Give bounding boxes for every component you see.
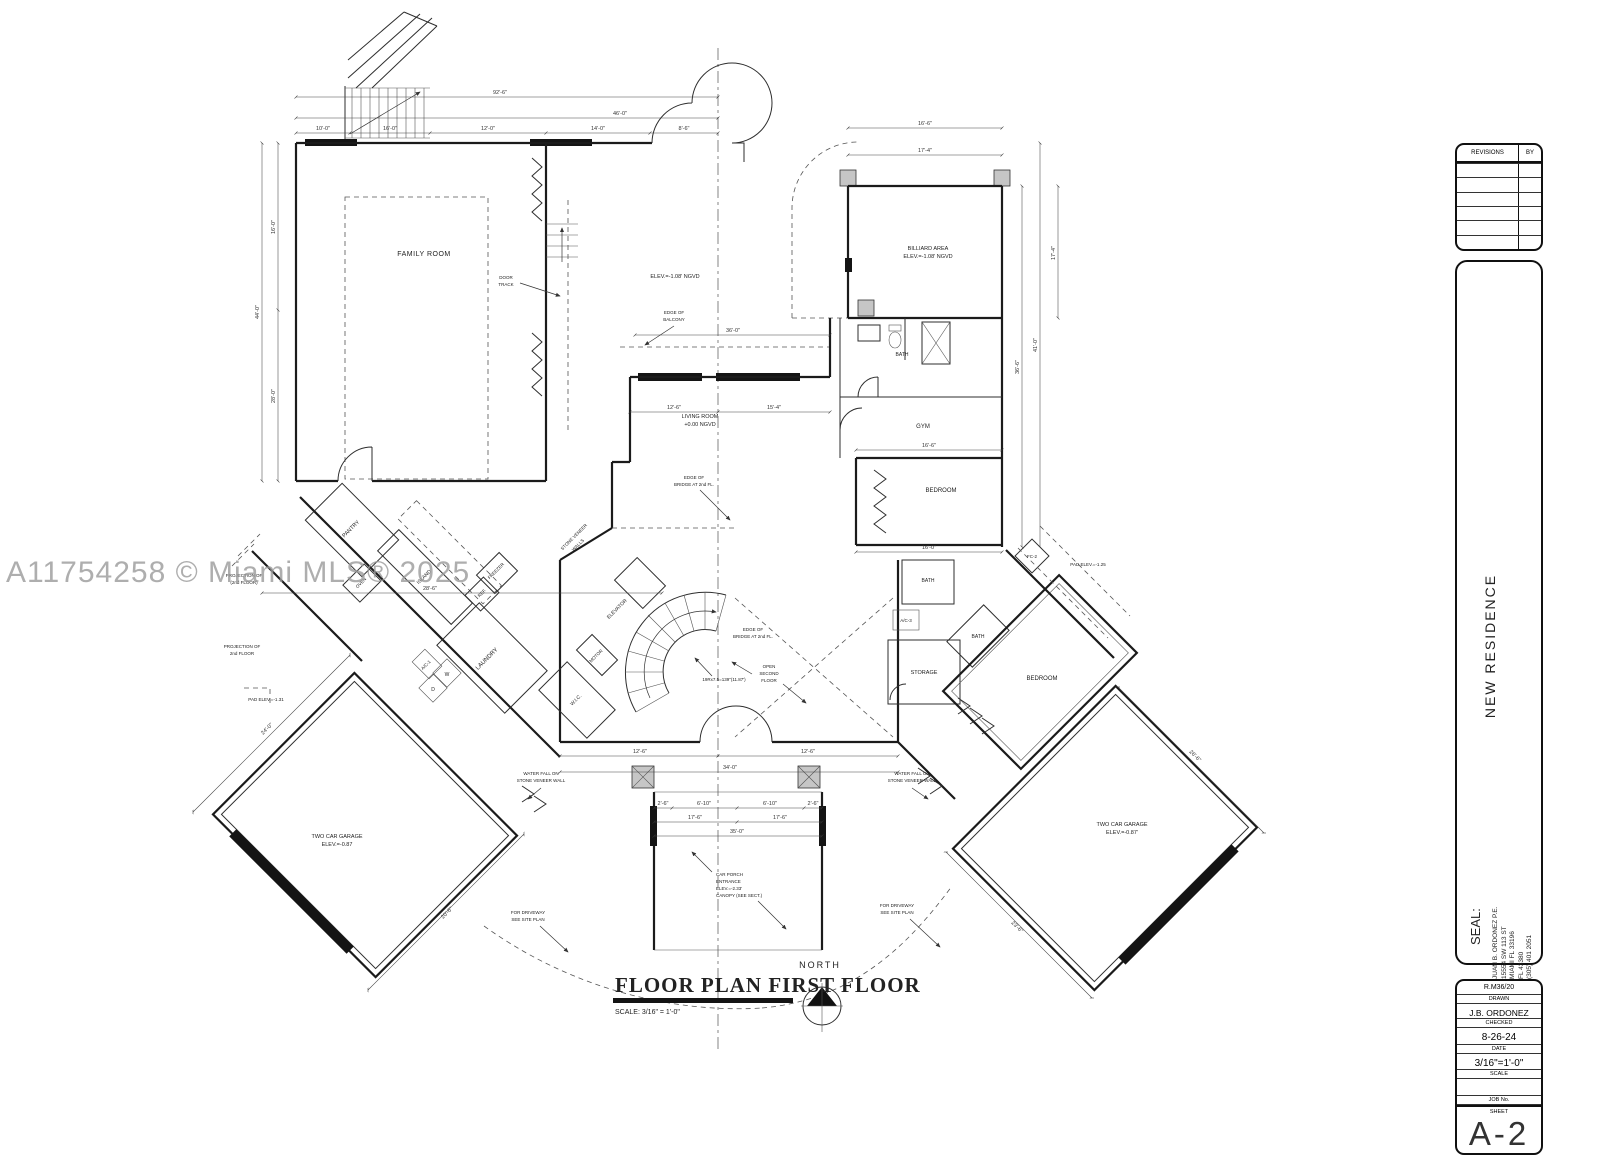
seal-label: SEAL: [1468, 875, 1486, 945]
engineer-line: (305) 401 2051 [1526, 849, 1535, 979]
pad131-note: PAD ELEV.=-1.31 [248, 697, 284, 702]
revision-row [1457, 206, 1541, 220]
top-canopy-stairs [345, 12, 437, 140]
dim-label: 46'-0" [613, 111, 627, 117]
revisions-table: REVISIONS BY [1455, 143, 1543, 251]
dim-label: 23'-6" [1010, 920, 1024, 934]
revision-row [1457, 220, 1541, 234]
right-garage [953, 686, 1260, 993]
dim-label: 24'-0" [260, 722, 274, 736]
date-value: 8-26-24 [1457, 1028, 1541, 1043]
storage-label: STORAGE [911, 670, 938, 676]
ac1-label: A/C-1 [420, 659, 432, 671]
door-track-note: DOOR [499, 275, 513, 280]
gym-bedroom-walls [840, 397, 1002, 545]
curved-stair [625, 592, 726, 712]
dim-label: 17'-6" [688, 815, 702, 821]
stone-veneer-zigzag [532, 158, 542, 221]
waterfall-note2: STONE VENEER WALL [517, 778, 566, 783]
dim-label: 36'-6" [1015, 360, 1021, 374]
mls-watermark: A11754258 © Miami MLS® 2025 [6, 556, 470, 590]
plan-title: FLOOR PLAN FIRST FLOOR [615, 973, 921, 997]
dim-label: 12'-0" [481, 126, 495, 132]
dim-label: 34'-0" [723, 765, 737, 771]
dim-label: 16'-0" [271, 220, 277, 234]
driveway-note: FOR DRIVEWAY [880, 903, 914, 908]
fc2-label: FC-2 [1027, 554, 1037, 559]
scale-label: SCALE [1457, 1069, 1541, 1079]
dim-label: 17'-4" [1051, 246, 1057, 260]
family-room-label: FAMILY ROOM [397, 251, 450, 258]
checked-label: CHECKED [1457, 1018, 1541, 1028]
ac3-label: A/C-3 [900, 618, 912, 623]
sheet-label: SHEET [1457, 1107, 1541, 1115]
car-porch-note4: CANOPY (SEE SECT.) [716, 893, 763, 898]
stone-veneer-zigzag [532, 333, 542, 396]
open-second-note2: SECOND [759, 671, 779, 676]
projection2-note: PROJECTION OF [224, 644, 261, 649]
garage-left-elev: ELEV.=-0.87 [322, 842, 353, 848]
revision-row [1457, 163, 1541, 177]
washer-label: W [445, 672, 450, 678]
plan-scale: SCALE: 3/16" = 1'-0" [615, 1009, 680, 1016]
bath-label: BATH [972, 634, 985, 640]
dim-label: 2'-6" [658, 801, 669, 807]
bedroom-wing-walls [943, 575, 1137, 769]
engineer-line: 15554 SW 113 ST [1501, 849, 1510, 979]
dim-label: 14'-0" [591, 126, 605, 132]
pad125-note: PAD ELEV.=-1.25 [1070, 562, 1106, 567]
stone-veneer-zigzag [874, 470, 886, 533]
north-label: NORTH [799, 960, 841, 970]
living-room-walls [612, 318, 830, 528]
dim-label: 12'-6" [633, 749, 647, 755]
billiard-label: BILLIARD AREA [908, 246, 949, 252]
dim-label: 12'-6" [801, 749, 815, 755]
car-porch-note: CAR PORCH [716, 872, 743, 877]
dim-label: 16'-6" [922, 443, 936, 449]
bath-block [840, 318, 1002, 397]
living-room-elev: +0.00 NGVD [684, 422, 715, 428]
left-garage [210, 673, 517, 980]
open-second-note3: FLOOR [761, 678, 777, 683]
edge-balcony-note: EDGE OF [664, 310, 685, 315]
dim-label: 17'-4" [918, 148, 932, 154]
billiard-elev: ELEV.=-1.08' NGVD [903, 254, 952, 260]
bath-label: BATH [896, 352, 909, 358]
dim-label: 28'-0" [271, 389, 277, 403]
waterfall-note2: STONE VENEER WALL [888, 778, 937, 783]
waterfall-note: WATER FALL ON [894, 771, 929, 776]
projection2-note2: 2nd FLOOR [230, 651, 255, 656]
dim-label: 15'-4" [767, 405, 781, 411]
dim-label: 8'-6" [679, 126, 690, 132]
stair-formula-note: 19Rx7.5=139"(11.87') [702, 677, 746, 682]
engineer-line: FL 43380 [1518, 849, 1527, 979]
edge-balcony-note2: BALCONY [663, 317, 685, 322]
dim-label: 16'-0" [383, 126, 397, 132]
bath-label: BATH [922, 578, 935, 584]
dim-label: 44'-0" [255, 305, 261, 319]
garage-right-elev: ELEV.=-0.87' [1106, 830, 1138, 836]
dim-label: 6'-10" [697, 801, 711, 807]
dryer-label: D [431, 687, 435, 693]
dim-label: 17'-6" [773, 815, 787, 821]
dim-label: 16'-0" [922, 545, 936, 551]
balcony-elev-label: ELEV.=-1.08' NGVD [650, 274, 699, 280]
dim-label: 35'-0" [730, 829, 744, 835]
drawn-label: DRAWN [1457, 994, 1541, 1004]
balcony-edge [620, 142, 858, 347]
bedroom-wing-label: BEDROOM [1026, 676, 1057, 682]
dim-label: 41'-0" [1033, 338, 1039, 352]
edge-bridge-note2: BRIDGE AT 2nd FL. [674, 482, 714, 487]
scale-value: 3/16"=1'-0" [1457, 1054, 1541, 1069]
revisions-header: REVISIONS BY [1457, 145, 1541, 163]
sheet-info-block: R.M36/20 DRAWN J.B. ORDONEZ CHECKED 8-26… [1455, 979, 1543, 1155]
garage-door [1118, 844, 1238, 964]
second-floor-projection-dashed [345, 197, 488, 479]
revision-row [1457, 235, 1541, 249]
garage-right-label: TWO CAR GARAGE [1096, 822, 1147, 828]
elevator-label: ELEVATOR [606, 598, 629, 621]
job-number-label: JOB No. [1457, 1095, 1541, 1105]
driveway-note: FOR DRIVEWAY [511, 910, 545, 915]
dim-label: 16'-6" [918, 121, 932, 127]
right-bedroom-wing [522, 526, 1137, 812]
waterfall-note: WATER FALL ON [523, 771, 558, 776]
bedroom-right-label: BEDROOM [925, 488, 956, 494]
dimension-lines [193, 97, 1264, 998]
wic-label: W.I.C. [569, 693, 583, 707]
title-underline [613, 998, 793, 1003]
car-porch-note2: ENTRANCE [716, 879, 741, 884]
dim-label: 6'-10" [763, 801, 777, 807]
edge-bridge-note: EDGE OF [684, 475, 705, 480]
engineer-line: JUAN B. ORDONEZ P.E. [1492, 849, 1501, 979]
garage-left-label: TWO CAR GARAGE [311, 834, 362, 840]
by-header-label: BY [1518, 145, 1541, 161]
edge-bridge-note2: BRIDGE AT 2nd FL. [733, 634, 773, 639]
door-track-note2: TRACK [498, 282, 513, 287]
engineer-line: MIAMI FL 33196 [1509, 849, 1518, 979]
revision-row [1457, 192, 1541, 206]
pantry-label: PANTRY [341, 519, 361, 539]
edge-bridge-note: EDGE OF [743, 627, 764, 632]
freezer-label: FREEZER [487, 561, 506, 580]
dim-label: 10'-0" [316, 126, 330, 132]
motor-label: MOTOR [588, 648, 604, 664]
date-label: DATE [1457, 1044, 1541, 1054]
dim-label: 92'-6" [493, 90, 507, 96]
dim-label: 20'-6" [440, 906, 454, 920]
sheet-number: A-2 [1457, 1115, 1541, 1153]
project-name: NEW RESIDENCE [1482, 566, 1502, 726]
laundry-label: LAUNDRY [475, 647, 499, 671]
sheet-section: SHEET A-2 [1457, 1105, 1541, 1153]
dim-label: 36'-0" [726, 328, 740, 334]
room-labels: FAMILY ROOM LIVING ROOM +0.00 NGVD BILLI… [311, 246, 1147, 848]
engineer-address: JUAN B. ORDONEZ P.E. 15554 SW 113 ST MIA… [1492, 849, 1538, 979]
driveway-note2: SEE SITE PLAN [511, 917, 544, 922]
drawing-sheet: A11754258 © Miami MLS® 2025 [0, 0, 1600, 1173]
checked-value: J.B. ORDONEZ [1457, 1004, 1541, 1019]
car-porch-note3: ELEV.=-2.33' [716, 886, 742, 891]
revision-row [1457, 177, 1541, 191]
dim-label: 12'-6" [667, 405, 681, 411]
open-second-note: OPEN [763, 664, 776, 669]
revisions-header-label: REVISIONS [1457, 150, 1518, 156]
driveway-note2: SEE SITE PLAN [880, 910, 913, 915]
living-room-label: LIVING ROOM [682, 414, 719, 420]
gym-label: GYM [916, 424, 930, 430]
dim-label: 2'-6" [808, 801, 819, 807]
job-number-value [1457, 1079, 1541, 1095]
drawn-value: R.M36/20 [1457, 981, 1541, 994]
